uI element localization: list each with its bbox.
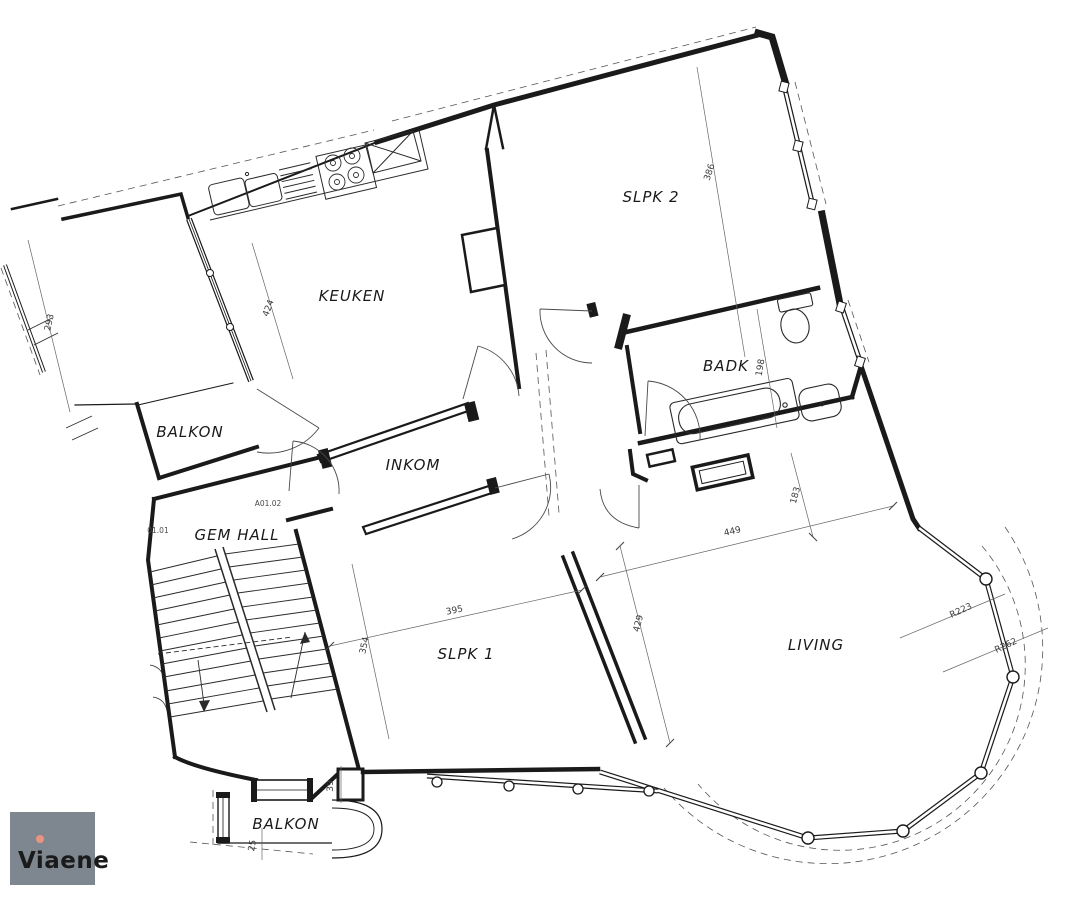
room-label-gem-hall: GEM HALL xyxy=(194,526,279,544)
dim-429: 429 xyxy=(632,614,646,633)
sink-basin xyxy=(244,173,282,208)
stairs xyxy=(150,544,338,717)
inkom-north-wall xyxy=(318,403,471,462)
doors-layer xyxy=(257,309,700,539)
dim-198: 198 xyxy=(755,358,768,377)
dim-424: 424 xyxy=(261,298,276,318)
gemhall-north-wall xyxy=(154,457,321,499)
keuken-partition-window xyxy=(189,219,251,381)
balkon-left-window xyxy=(216,792,230,843)
drainboard xyxy=(279,163,317,199)
room-label-slpk2: SLPK 2 xyxy=(622,188,679,206)
dim-395: 395 xyxy=(445,604,464,617)
chimney-nook xyxy=(462,228,505,292)
bay-post xyxy=(802,832,814,844)
code-label-a0102: A01.02 xyxy=(255,499,282,508)
living-west-wall xyxy=(573,553,645,738)
windows-layer xyxy=(5,81,1019,844)
bay-post xyxy=(1007,671,1019,683)
room-label-inkom: INKOM xyxy=(386,456,441,474)
south-wall xyxy=(363,769,598,772)
labels-layer: KEUKEN SLPK 2 BADK BALKON INKOM GEM HALL… xyxy=(43,162,1019,852)
code-label-0101: 01.01 xyxy=(147,526,169,535)
door-slpk2 xyxy=(540,309,592,363)
east-wall xyxy=(861,366,919,528)
door-keuken xyxy=(463,346,519,399)
stair-stringer xyxy=(215,549,267,712)
toilet xyxy=(777,293,813,346)
fixtures-layer xyxy=(28,130,843,445)
room-label-slpk1: SLPK 1 xyxy=(437,645,494,663)
stove-burners xyxy=(325,148,364,190)
dim-39: 39 xyxy=(326,780,336,792)
stair-down-arrow xyxy=(198,660,204,704)
bay-post xyxy=(897,825,909,837)
dim-r223: R223 xyxy=(948,602,973,621)
logo-pin-icon xyxy=(36,835,44,843)
dim-449: 449 xyxy=(723,525,742,539)
dim-25: 25 xyxy=(247,839,259,852)
dim-ticks xyxy=(326,502,897,747)
gemhall-west-wall xyxy=(148,499,175,757)
sink-basin xyxy=(208,177,250,215)
viaene-logo: Viaene xyxy=(10,812,109,885)
badk-east-window xyxy=(836,301,866,368)
fireplace-flue xyxy=(692,455,753,490)
bay-window xyxy=(600,528,1019,844)
walls-layer xyxy=(12,33,919,800)
logo-text: Viaene xyxy=(18,848,109,874)
fireplace-wall xyxy=(630,451,646,480)
room-label-balkon-bottom: BALKON xyxy=(252,815,319,833)
room-label-badk: BADK xyxy=(703,357,749,375)
floorplan-drawing: KEUKEN SLPK 2 BADK BALKON INKOM GEM HALL… xyxy=(0,0,1066,900)
floorplan-canvas: KEUKEN SLPK 2 BADK BALKON INKOM GEM HALL… xyxy=(0,0,1066,900)
door-gemhall-inkom xyxy=(289,441,339,494)
dim-293: 293 xyxy=(43,313,57,332)
door-slpk1 xyxy=(495,474,551,539)
bay-post xyxy=(980,573,992,585)
inkom-south-wall xyxy=(363,485,495,534)
dim-183: 183 xyxy=(789,486,803,505)
door-balkon-left xyxy=(257,389,319,453)
ground-hatches xyxy=(28,318,98,440)
balkon-bottom-window xyxy=(251,778,313,802)
balkon-west-wall xyxy=(137,404,159,478)
room-label-balkon-left: BALKON xyxy=(156,423,223,441)
dim-354: 354 xyxy=(358,636,372,655)
bay-post xyxy=(975,767,987,779)
room-label-keuken: KEUKEN xyxy=(319,287,386,305)
room-label-living: LIVING xyxy=(788,636,844,654)
door-living xyxy=(600,485,639,528)
